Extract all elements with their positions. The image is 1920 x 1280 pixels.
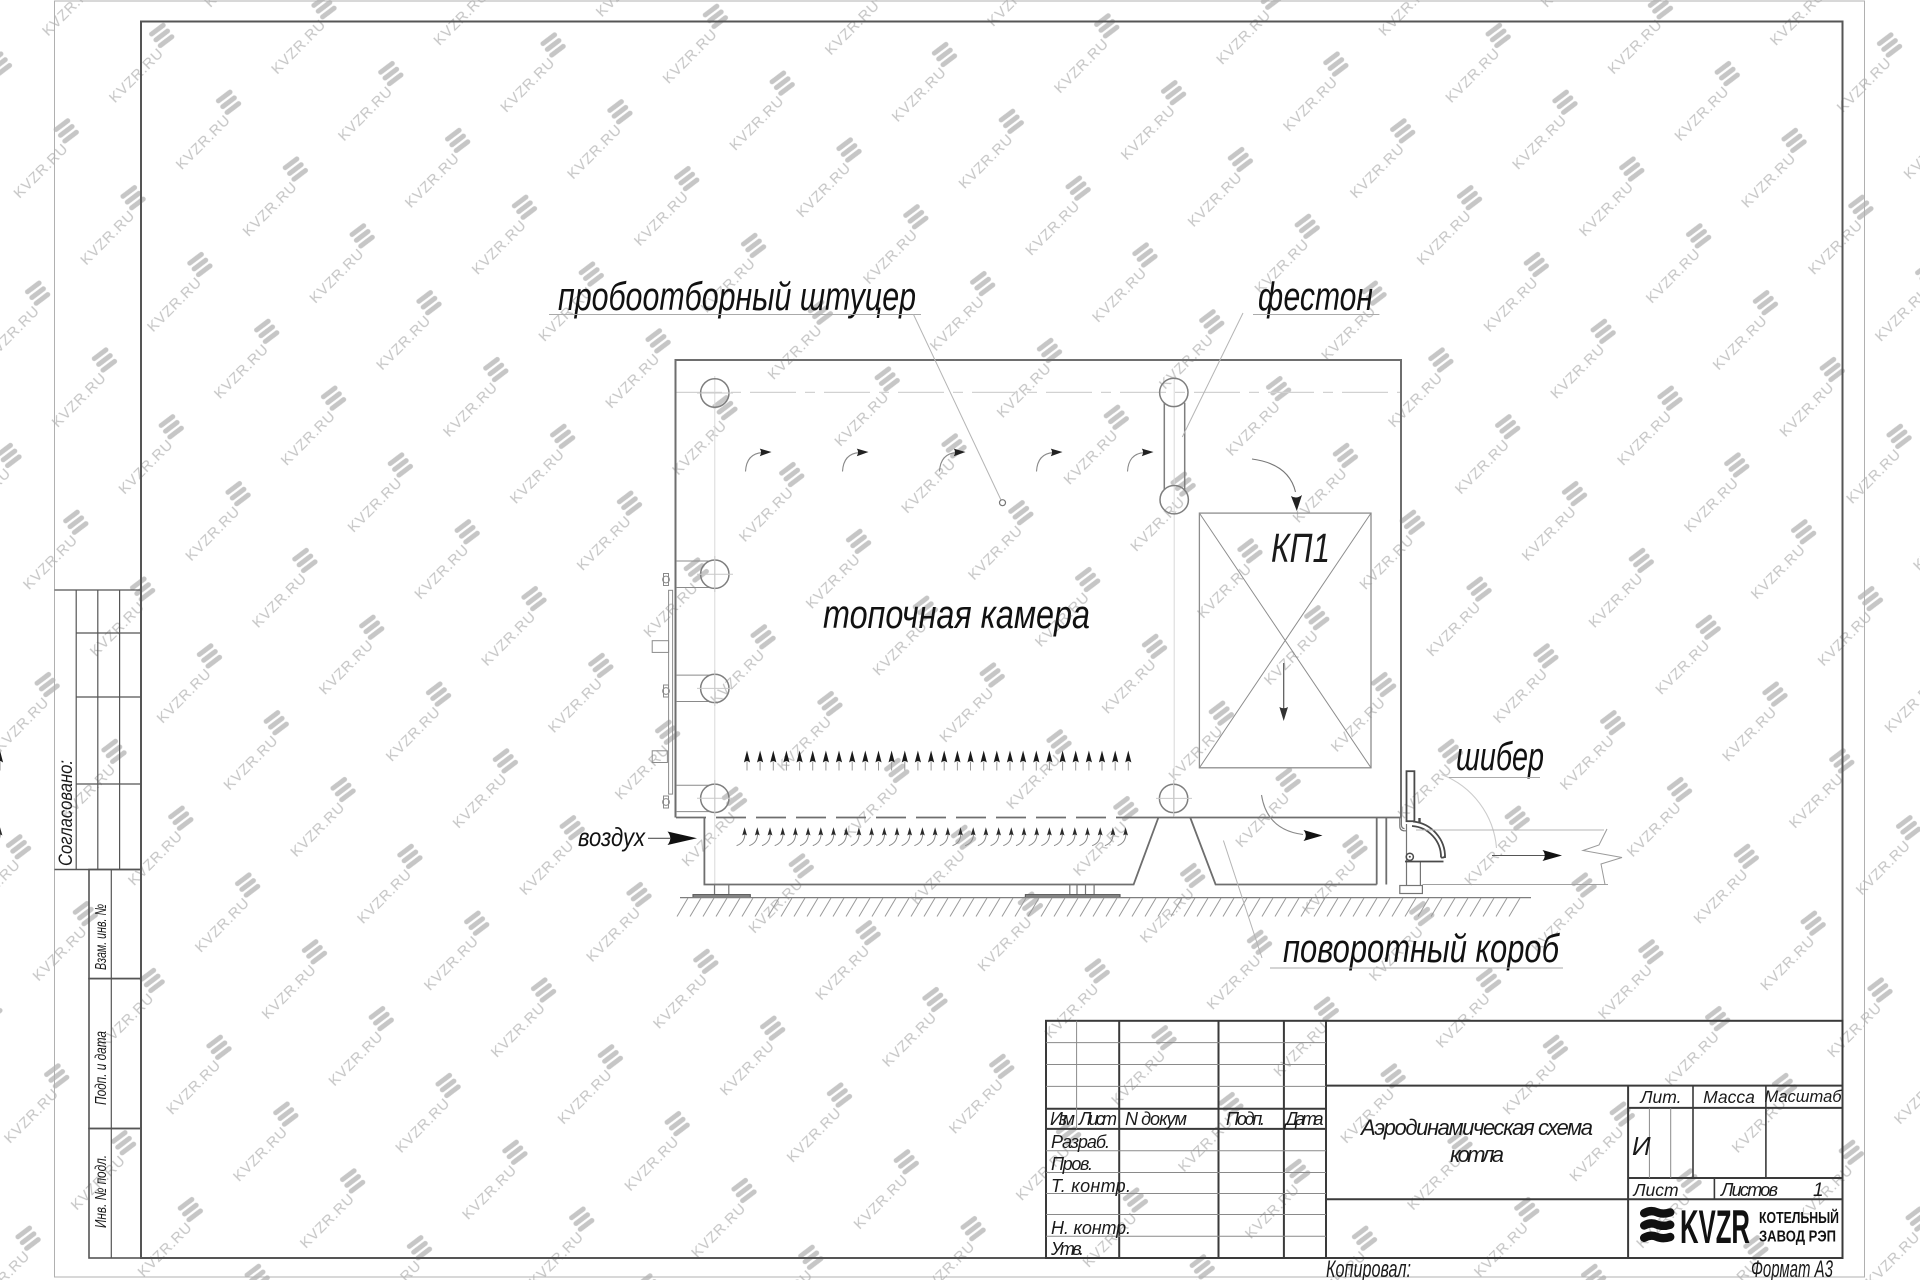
svg-text:Лист: Лист: [1633, 1180, 1679, 1200]
svg-text:Копировал:: Копировал:: [1326, 1256, 1411, 1280]
svg-text:Масса: Масса: [1703, 1087, 1755, 1107]
svg-text:Инв. № подл.: Инв. № подл.: [93, 1155, 110, 1228]
svg-text:Пров.: Пров.: [1051, 1154, 1093, 1174]
svg-text:топочная камера: топочная камера: [823, 593, 1090, 637]
svg-text:KVZR: KVZR: [1680, 1200, 1750, 1253]
svg-text:Подп. и дата: Подп. и дата: [93, 1031, 110, 1105]
svg-text:КП1: КП1: [1271, 525, 1330, 571]
svg-text:Формат А3: Формат А3: [1751, 1256, 1833, 1280]
svg-text:Разраб.: Разраб.: [1051, 1132, 1110, 1152]
svg-text:1: 1: [1813, 1180, 1824, 1201]
svg-text:котла: котла: [1450, 1142, 1504, 1167]
svg-text:Листов: Листов: [1720, 1180, 1778, 1200]
svg-text:Лит.: Лит.: [1640, 1087, 1682, 1107]
svg-text:Подп.: Подп.: [1226, 1109, 1265, 1129]
svg-text:воздух: воздух: [578, 822, 646, 852]
svg-text:Аэродинамическая схема: Аэродинамическая схема: [1359, 1115, 1593, 1140]
svg-text:Лист: Лист: [1078, 1109, 1117, 1129]
svg-text:шибер: шибер: [1456, 735, 1544, 779]
svg-text:пробоотборный штуцер: пробоотборный штуцер: [558, 275, 916, 319]
svg-text:поворотный короб: поворотный короб: [1283, 927, 1560, 971]
svg-text:И: И: [1632, 1131, 1651, 1161]
svg-text:ЗАВОД РЭП: ЗАВОД РЭП: [1759, 1229, 1836, 1246]
svg-text:Утв.: Утв.: [1050, 1239, 1084, 1259]
svg-text:Масштаб: Масштаб: [1764, 1088, 1842, 1106]
svg-text:Согласовано:: Согласовано:: [56, 760, 77, 866]
svg-text:Взам. инв. №: Взам. инв. №: [93, 904, 110, 970]
svg-text:Н. контр.: Н. контр.: [1051, 1218, 1131, 1238]
svg-text:N докум: N докум: [1125, 1109, 1187, 1129]
svg-text:фестон: фестон: [1258, 275, 1373, 319]
svg-text:Т. контр.: Т. контр.: [1051, 1176, 1131, 1196]
svg-text:Изм: Изм: [1050, 1109, 1075, 1129]
svg-text:Дата: Дата: [1284, 1109, 1324, 1129]
svg-text:КОТЕЛЬНЫЙ: КОТЕЛЬНЫЙ: [1759, 1209, 1839, 1227]
